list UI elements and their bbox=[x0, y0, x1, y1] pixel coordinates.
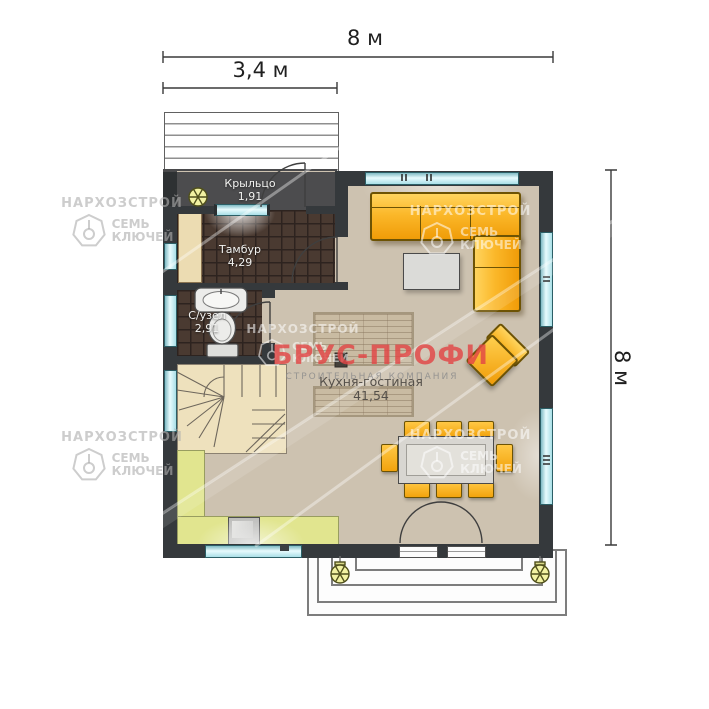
room-name: Тамбур bbox=[195, 244, 285, 257]
window-bottom bbox=[205, 545, 302, 558]
stamp-text: НАРХОЗСТРОЙ bbox=[393, 428, 548, 443]
stamp-text: НАРХОЗСТРОЙ bbox=[238, 322, 368, 336]
heptagon-logo-icon bbox=[71, 447, 107, 483]
room-area: 4,29 bbox=[195, 257, 285, 270]
dimension-label-top-partial: 3,4 м bbox=[218, 58, 303, 82]
sofa-seat-divider bbox=[475, 267, 519, 268]
room-area: 1,91 bbox=[200, 191, 300, 204]
wall-vestibule-living bbox=[335, 171, 348, 237]
window-top bbox=[365, 172, 519, 185]
heptagon-logo-icon bbox=[71, 213, 107, 249]
room-name: С/узел bbox=[163, 310, 251, 323]
room-name: Крыльцо bbox=[200, 178, 300, 191]
appliance-inner bbox=[232, 521, 253, 538]
room-area: 2,91 bbox=[163, 323, 251, 336]
stamp-word: КЛЮЧЕЙ bbox=[112, 231, 174, 244]
room-label-vestibule: Тамбур 4,29 bbox=[195, 244, 285, 269]
brand-name: БРУС-ПРОФИ bbox=[272, 340, 472, 371]
dimension-line-top-partial bbox=[163, 82, 337, 94]
window-left-stairs bbox=[164, 370, 177, 432]
wall-vestibule-bathroom bbox=[163, 283, 348, 290]
dimension-label-right: 8 м bbox=[610, 338, 634, 398]
french-door-panel bbox=[399, 546, 438, 558]
room-label-bathroom: С/узел 2,91 bbox=[163, 310, 251, 335]
watermark-stamp: НАРХОЗСТРОЙ СЕМЬ КЛЮЧЕЙ bbox=[393, 428, 548, 481]
wall-bathroom-right bbox=[262, 290, 275, 298]
room-area: 41,54 bbox=[301, 389, 441, 403]
room-name: Кухня-гостиная bbox=[301, 375, 441, 389]
ceiling-light-icon bbox=[331, 556, 349, 583]
stamp-word: КЛЮЧЕЙ bbox=[460, 463, 522, 476]
floor-plan-canvas: НАРХОЗСТРОЙ СЕМЬ КЛЮЧЕЙ НАРХОЗСТРОЙ СЕМЬ bbox=[0, 0, 709, 709]
watermark-stamp: НАРХОЗСТРОЙ СЕМЬ КЛЮЧЕЙ bbox=[42, 196, 202, 249]
dimension-label-top-full: 8 м bbox=[330, 26, 400, 50]
ceiling-light-icon bbox=[531, 556, 549, 583]
watermark-stamp: НАРХОЗСТРОЙ СЕМЬ КЛЮЧЕЙ bbox=[393, 204, 548, 257]
french-door-panel bbox=[447, 546, 486, 558]
door-panel-line bbox=[448, 551, 485, 552]
coffee-table bbox=[403, 253, 460, 290]
stamp-text: НАРХОЗСТРОЙ bbox=[393, 204, 548, 219]
heptagon-logo-icon bbox=[419, 445, 455, 481]
stamp-text: НАРХОЗСТРОЙ bbox=[42, 430, 202, 445]
room-label-porch: Крыльцо 1,91 bbox=[200, 178, 300, 203]
terrace-step-outer bbox=[308, 550, 566, 615]
room-label-kitchen-living: Кухня-гостиная 41,54 bbox=[301, 375, 441, 402]
heptagon-logo-icon bbox=[419, 221, 455, 257]
stamp-word: КЛЮЧЕЙ bbox=[112, 465, 174, 478]
kitchen-sink-appliance bbox=[228, 517, 260, 545]
stamp-text: НАРХОЗСТРОЙ bbox=[42, 196, 202, 211]
door-panel-line bbox=[400, 551, 437, 552]
watermark-stamp: НАРХОЗСТРОЙ СЕМЬ КЛЮЧЕЙ bbox=[42, 430, 202, 483]
stamp-word: КЛЮЧЕЙ bbox=[460, 239, 522, 252]
